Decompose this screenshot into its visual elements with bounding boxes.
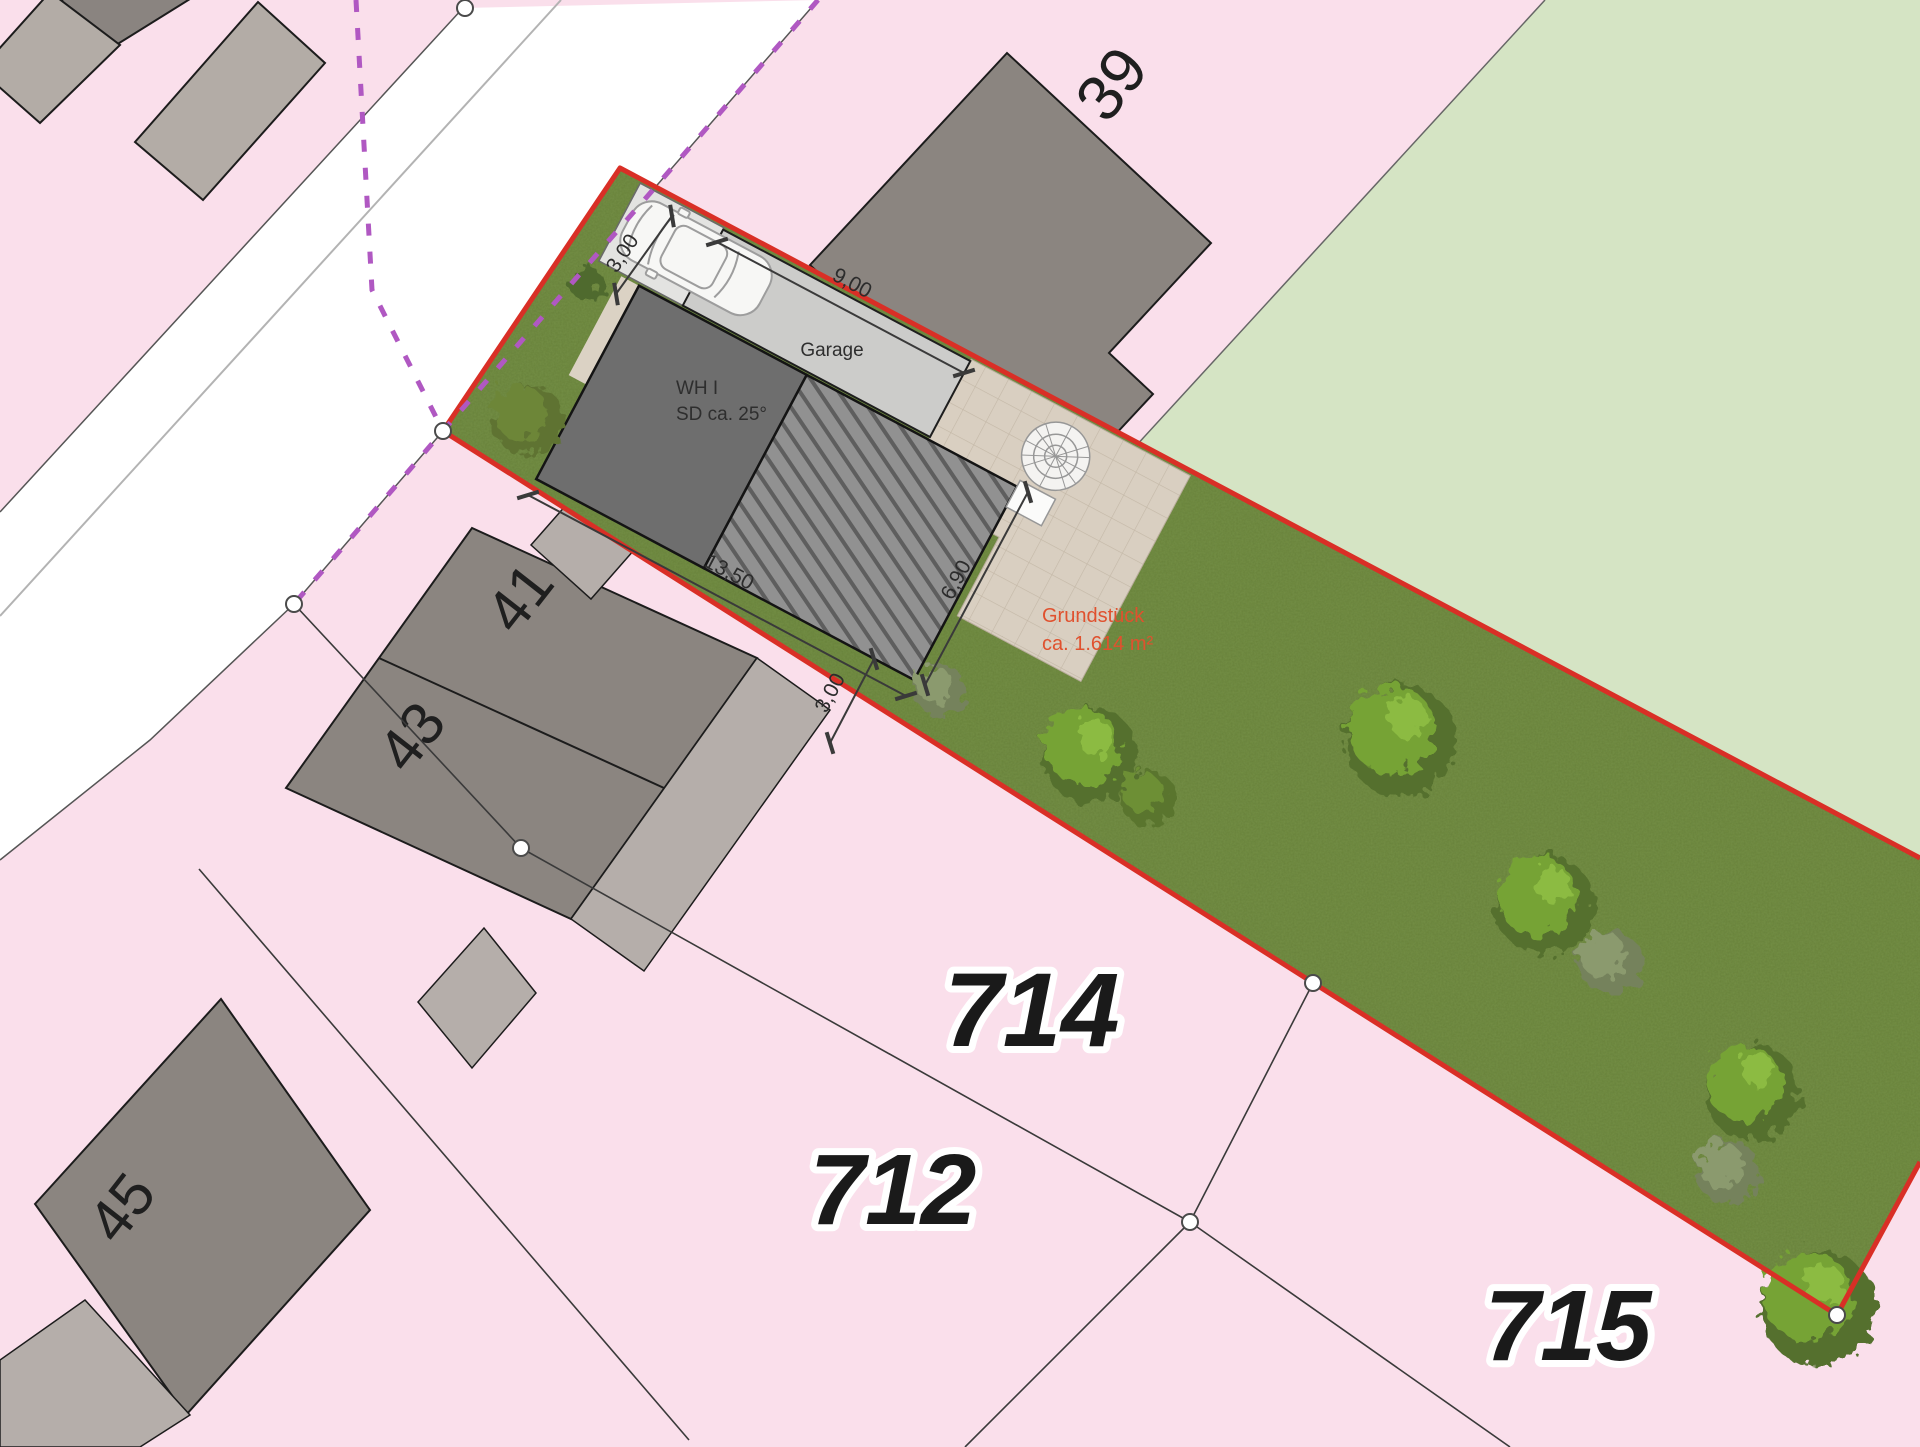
boundary-node [457,0,473,16]
house-label-line1: WH I [676,378,718,399]
plot-area-label-line1: Grundstück [1042,605,1145,627]
parcel-715-label: 715 [1485,1270,1653,1382]
boundary-node [435,423,451,439]
tree [1578,930,1642,994]
boundary-node [513,840,529,856]
garage-label: Garage [800,340,863,361]
house-label-line2: SD ca. 25° [676,404,767,425]
parcel-714-label: 714 [944,952,1119,1069]
boundary-node [1305,975,1321,991]
tree [1760,1250,1876,1366]
tree [1120,770,1176,826]
tree [1696,1140,1760,1204]
site-plan: 39 41 43 45 [0,0,1920,1447]
tree [1704,1044,1800,1140]
tree [1344,684,1456,796]
parcel-712-label: 712 [810,1134,977,1246]
tree [914,664,966,716]
boundary-node [1829,1307,1845,1323]
bush [492,384,564,456]
boundary-node [286,596,302,612]
plot-area-label-line2: ca. 1.614 m² [1042,633,1154,655]
tree [1495,855,1595,955]
boundary-node [1182,1214,1198,1230]
